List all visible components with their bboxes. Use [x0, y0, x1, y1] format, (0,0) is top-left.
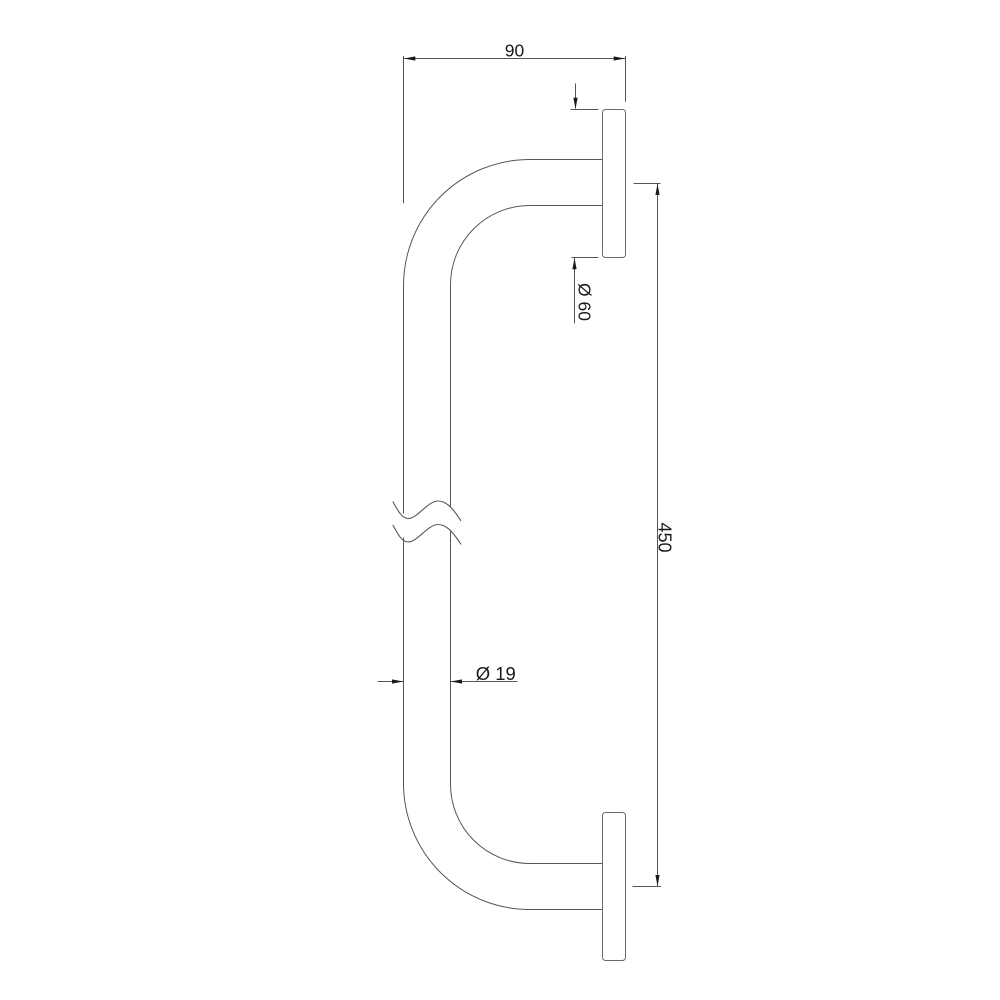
svg-text:Ø 19: Ø 19 — [476, 663, 516, 684]
svg-text:90: 90 — [505, 41, 525, 61]
svg-text:450: 450 — [655, 522, 675, 552]
svg-text:Ø 60: Ø 60 — [574, 283, 594, 321]
